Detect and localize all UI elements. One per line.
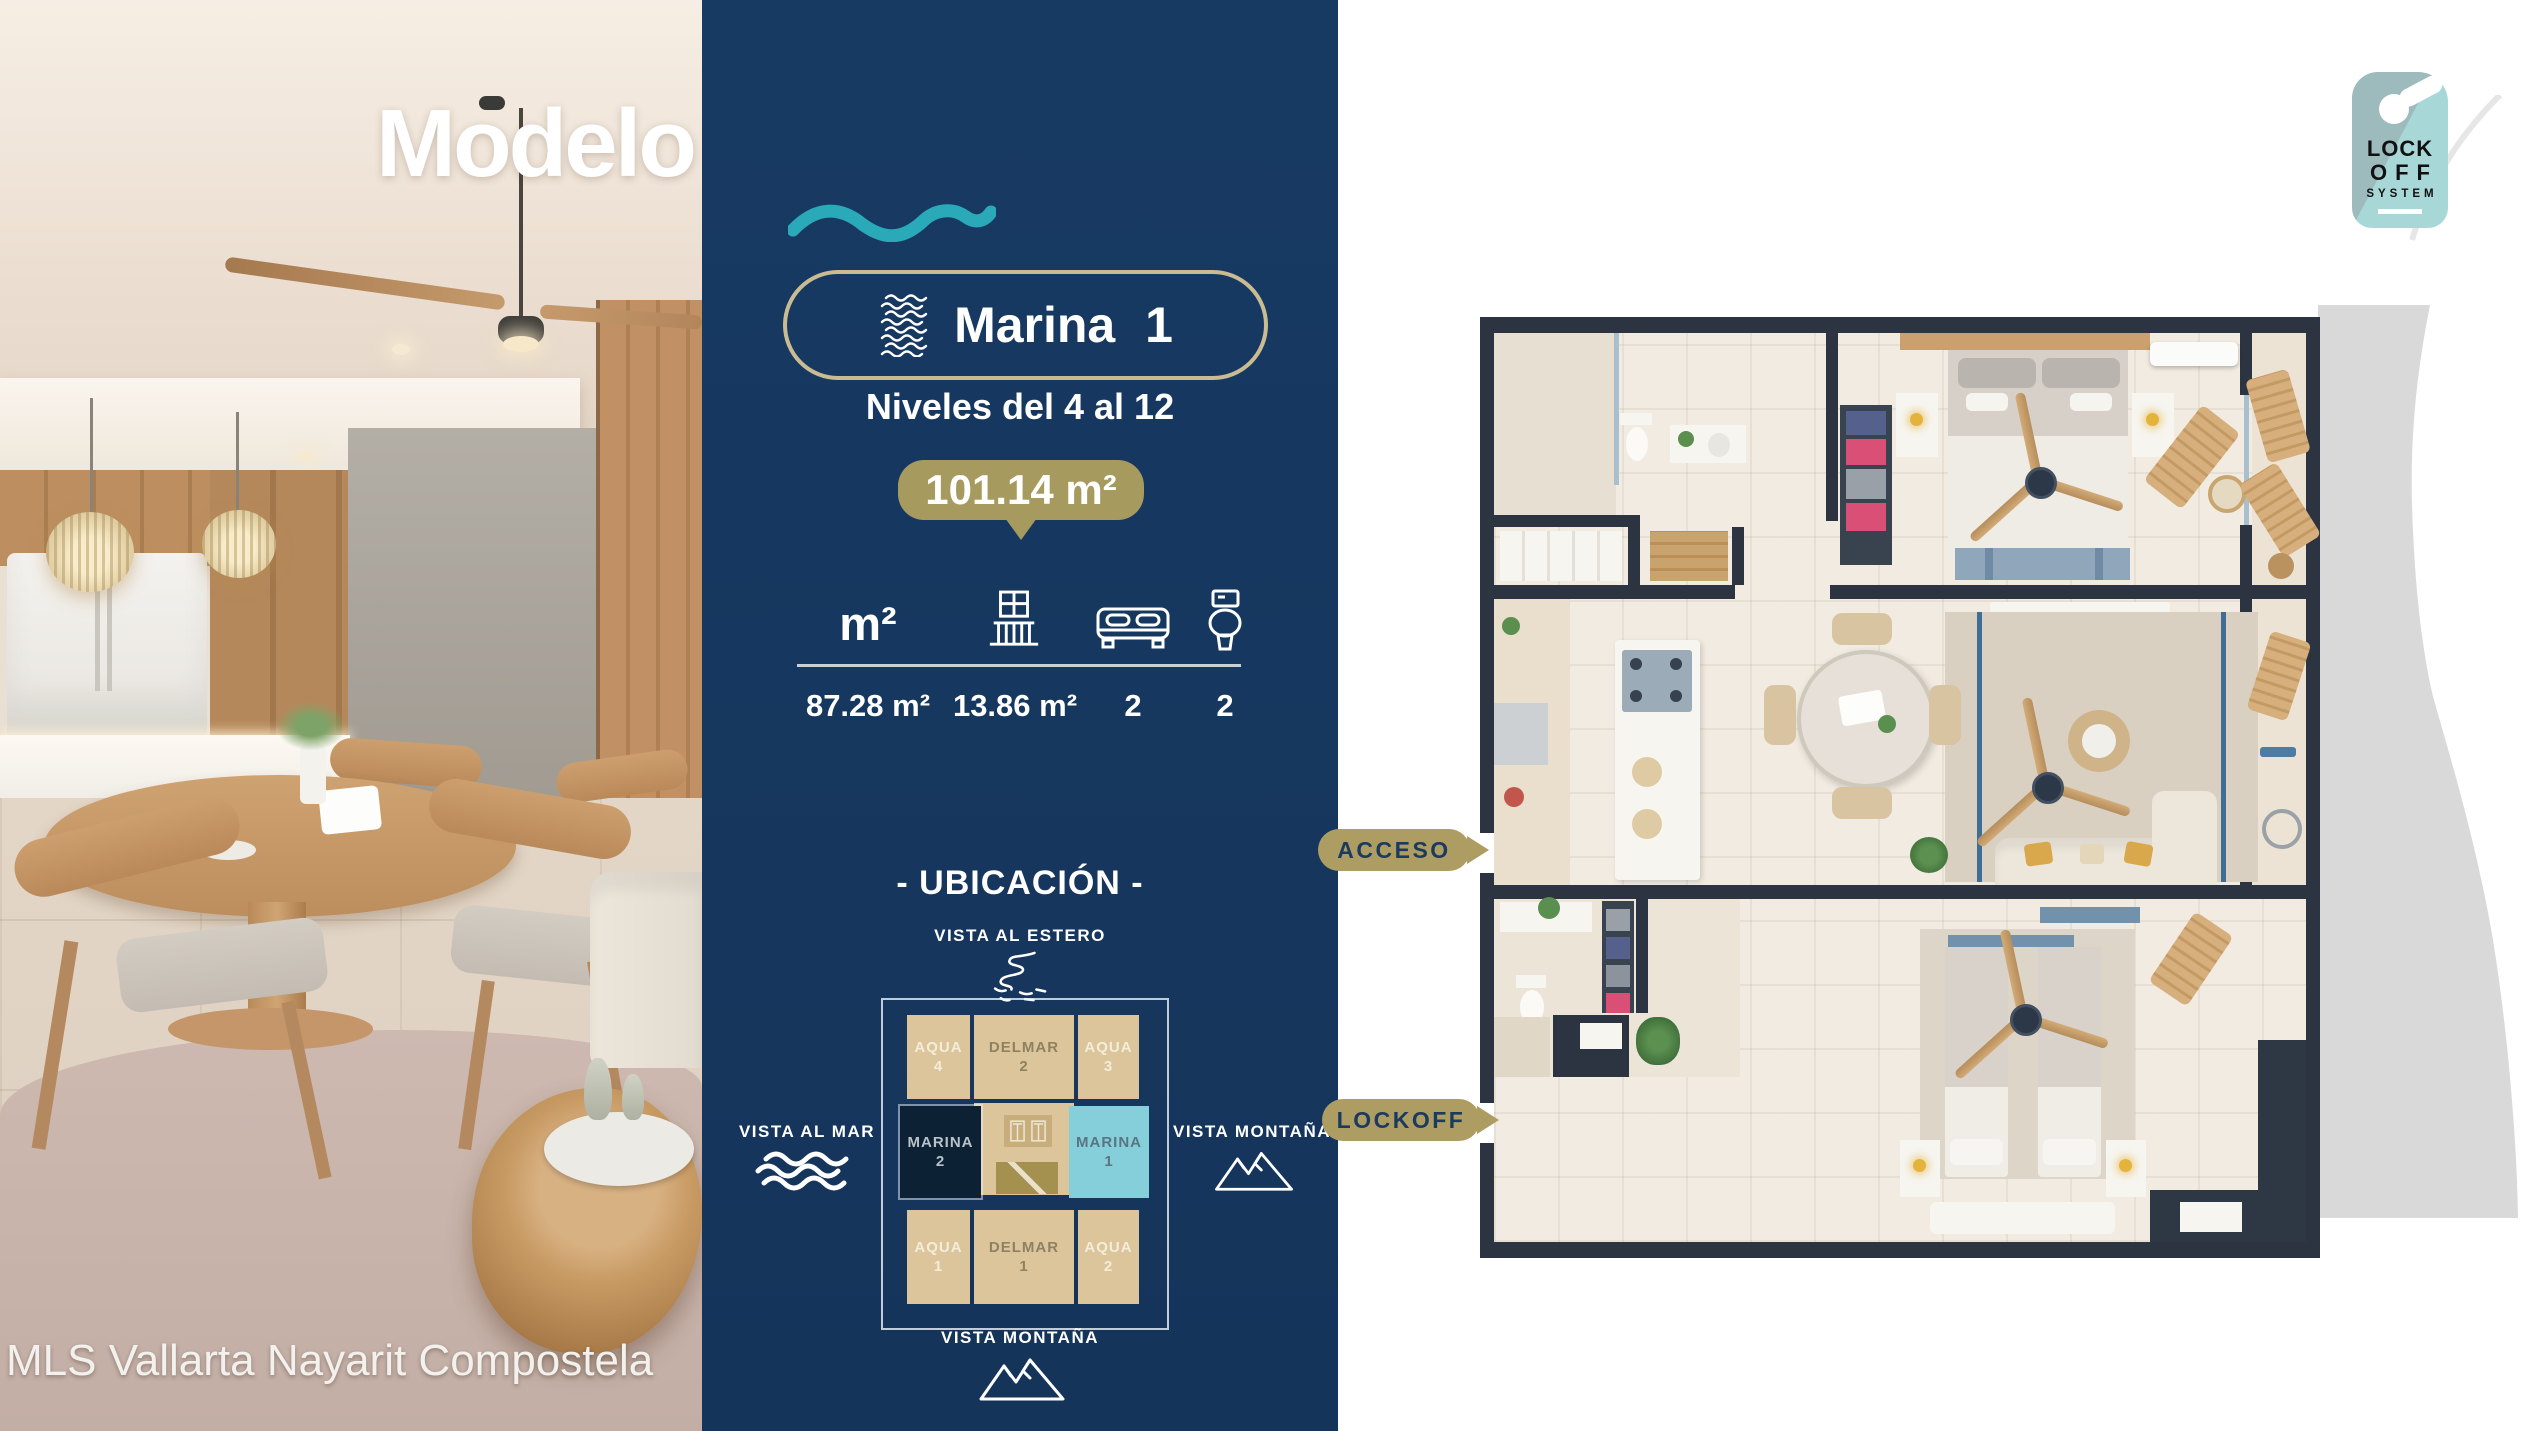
- acceso-label: ACCESO: [1337, 837, 1450, 864]
- plan-glass-door: [2244, 395, 2249, 525]
- plan-fruit-bowl: [1504, 787, 1524, 807]
- elevator-icon: [1010, 1120, 1025, 1142]
- plan-wall-left: [1480, 1143, 1494, 1258]
- photo-downlight: [392, 344, 410, 355]
- plan-coffee-tray: [2082, 724, 2116, 758]
- plan-sofa-chaise: [2152, 791, 2217, 885]
- interior-area-value: 87.28 m²: [797, 688, 939, 724]
- plan-wardrobe-item: [1606, 909, 1630, 931]
- logo-lock: LOCK: [2352, 136, 2448, 162]
- plan-sink: [1708, 433, 1730, 457]
- photo-pendant-lamp: [202, 510, 276, 578]
- plan-lamp: [2119, 1159, 2132, 1172]
- unit-cell-marina-1: MARINA 1: [1069, 1106, 1149, 1198]
- photo-decor-vase: [584, 1058, 612, 1120]
- background-swoosh: [2290, 95, 2545, 1275]
- plan-wall-v: [1826, 331, 1838, 521]
- plan-towel: [2260, 747, 2296, 757]
- unit-badge-label: Marina 1: [954, 296, 1173, 354]
- unit-number: 1: [1104, 1154, 1113, 1169]
- photo-plant-greens: [276, 702, 346, 750]
- plan-kitchen-plant: [1502, 617, 1520, 635]
- mountain-icon: [978, 1354, 1066, 1402]
- plan-wall-right: [2306, 317, 2320, 1258]
- plan-bench: [1930, 1202, 2115, 1234]
- photo-fan-light: [503, 336, 539, 352]
- brochure-page: Modelo Marina Marina 1 Niveles d: [0, 0, 2545, 1431]
- fan-hub: [2010, 1004, 2042, 1036]
- plan-kitchen-fridge: [1494, 703, 1548, 765]
- view-montana-bottom-label: VISTA MONTAÑA: [702, 1328, 1338, 1348]
- plan-balcony-table: [2268, 553, 2294, 579]
- plan-lockoff-shower: [1494, 1017, 1550, 1077]
- plan-table-plant: [1878, 715, 1896, 733]
- plan-wardrobe-item: [1846, 439, 1886, 465]
- plan-closet-shelves: [1650, 531, 1728, 581]
- unit-name: MARINA: [908, 1135, 974, 1150]
- unit-cell-aqua-1: AQUA 1: [907, 1210, 970, 1304]
- unit-name: AQUA: [1084, 1040, 1132, 1055]
- title-wave-icon: [788, 198, 996, 242]
- levels-label: Niveles del 4 al 12: [702, 386, 1338, 428]
- plan-dining-chair: [1764, 685, 1796, 745]
- plan-plant: [1538, 897, 1560, 919]
- balcony-icon: [986, 588, 1042, 654]
- plan-wardrobe-item: [1846, 469, 1886, 499]
- bathrooms-value: 2: [1190, 688, 1260, 724]
- plan-dining-chair: [1832, 613, 1892, 645]
- plan-lamp: [1913, 1159, 1926, 1172]
- unit-name: AQUA: [914, 1040, 962, 1055]
- plan-wall-closet: [1628, 527, 1640, 585]
- bedrooms-value: 2: [1098, 688, 1168, 724]
- plan-lockoff-plant: [1636, 1017, 1680, 1065]
- lockoff-label: LOCKOFF: [1337, 1107, 1466, 1134]
- plan-wall-bath: [1494, 515, 1640, 527]
- logo-system: SYSTEM: [2352, 188, 2448, 200]
- plan-rug-stripe: [2040, 907, 2140, 923]
- plan-dining-chair: [1832, 787, 1892, 819]
- photo-sofa: [590, 872, 702, 1068]
- unit-cell-aqua-3: AQUA 3: [1078, 1015, 1139, 1099]
- plan-ac-unit: [2150, 342, 2238, 366]
- terrace-area-value: 13.86 m²: [950, 688, 1080, 724]
- unit-name: DELMAR: [989, 1240, 1059, 1255]
- photo-table-base: [168, 1008, 373, 1050]
- plan-floor-plant: [1910, 837, 1948, 873]
- interior-photo: [0, 0, 702, 1431]
- plan-wardrobe-item: [1606, 993, 1630, 1013]
- view-mar-label: VISTA AL MAR: [732, 1122, 882, 1142]
- photo-downlight: [300, 452, 315, 461]
- plan-wall-left: [1480, 317, 1494, 833]
- unit-number: 2: [1019, 1059, 1028, 1074]
- plan-pillow: [2042, 358, 2120, 388]
- acceso-callout: ACCESO: [1318, 829, 1470, 871]
- plan-shower: [1494, 333, 1616, 515]
- unit-number: 1: [934, 1259, 943, 1274]
- lockoff-system-logo: LOCK OFF SYSTEM: [2352, 72, 2448, 228]
- plan-pillow: [1958, 358, 2036, 388]
- plan-sofa-pillow: [2123, 841, 2153, 867]
- plan-tray: [1632, 809, 1662, 839]
- unit-cell-aqua-4: AQUA 4: [907, 1015, 970, 1099]
- photo-pendant-cord: [236, 412, 239, 516]
- plan-wardrobe-item: [1846, 411, 1886, 435]
- photo-pendant-lamp: [46, 512, 134, 592]
- plan-lamp: [1910, 413, 1923, 426]
- bed-icon: [1094, 602, 1172, 652]
- watermark: MLS Vallarta Nayarit Compostela: [6, 1336, 653, 1386]
- unit-cell-marina-2: MARINA 2: [900, 1106, 981, 1198]
- plan-plant: [1678, 431, 1694, 447]
- unit-number: 1: [1019, 1259, 1028, 1274]
- unit-number: 4: [934, 1059, 943, 1074]
- logo-hanger-hole: [2379, 94, 2409, 124]
- page-title-modelo: Modelo: [0, 94, 694, 194]
- logo-underline: [2378, 209, 2422, 214]
- plan-burners: [1630, 658, 1642, 670]
- info-panel: Marina 1 Niveles del 4 al 12 101.14 m² m…: [702, 0, 1338, 1431]
- plan-wall-bottom: [1480, 1242, 2320, 1258]
- plan-toilet-tank: [1620, 413, 1652, 425]
- plan-wall-closet: [1732, 527, 1744, 585]
- plan-sofa-pillow: [2080, 844, 2104, 864]
- photo-pendant-cord: [90, 398, 93, 520]
- plan-tray: [1632, 757, 1662, 787]
- plan-sofa-pillow: [2024, 841, 2054, 867]
- plan-wardrobe-item: [1606, 965, 1630, 987]
- logo-off: OFF: [2352, 160, 2448, 186]
- unit-cell-aqua-2: AQUA 2: [1078, 1210, 1139, 1304]
- plan-lockoff-sink: [1580, 1023, 1622, 1049]
- elevators-block: [1004, 1115, 1052, 1147]
- plan-kitchenette-sink: [2180, 1202, 2242, 1232]
- plan-closet: [1500, 531, 1622, 581]
- plan-pillow: [1950, 1139, 2003, 1165]
- unit-name: AQUA: [1084, 1240, 1132, 1255]
- plan-wall-h: [1830, 585, 2306, 599]
- plan-wardrobe-item: [1606, 937, 1630, 959]
- plan-bed-rug: [1955, 548, 2130, 580]
- plan-pillow: [1966, 393, 2008, 411]
- unit-name: DELMAR: [989, 1040, 1059, 1055]
- photo-laptop: [318, 785, 382, 835]
- lockoff-callout: LOCKOFF: [1322, 1099, 1480, 1141]
- plan-bed-blanket: [2038, 947, 2101, 1087]
- photo-vase: [300, 742, 326, 804]
- photo-decor-vase: [622, 1074, 644, 1120]
- location-grid: AQUA 4 DELMAR 2 AQUA 3 MARINA 2 MARINA 1: [881, 998, 1169, 1330]
- plan-wall-left: [1480, 873, 1494, 1103]
- elevator-icon: [1031, 1120, 1046, 1142]
- sea-waves-icon: [754, 1148, 854, 1192]
- floor-plan: [1480, 317, 2320, 1258]
- plan-wall-h: [1494, 585, 1735, 599]
- plan-wall-h: [1494, 885, 2306, 899]
- plan-wall-balcony: [2240, 525, 2252, 585]
- plan-pillow: [2070, 393, 2112, 411]
- unit-number: 2: [936, 1154, 945, 1169]
- plan-wall-top: [1480, 317, 2320, 333]
- estero-icon: [990, 950, 1054, 1002]
- unit-name: AQUA: [914, 1240, 962, 1255]
- plan-wardrobe-item: [1846, 503, 1886, 531]
- view-estero-label: VISTA AL ESTERO: [702, 926, 1338, 946]
- stairs-block: [996, 1162, 1058, 1194]
- plan-side-table: [2208, 475, 2246, 513]
- unit-cell-delmar-2: DELMAR 2: [974, 1015, 1074, 1099]
- marina-waves-icon: [878, 293, 930, 357]
- plan-toilet-tank: [1516, 975, 1546, 988]
- plan-bed-blanket: [1945, 947, 2008, 1087]
- mountain-icon: [1212, 1148, 1296, 1192]
- plan-lamp: [2146, 413, 2159, 426]
- unit-number: 3: [1104, 1059, 1113, 1074]
- view-montana-right-label: VISTA MONTAÑA: [1168, 1122, 1336, 1142]
- unit-badge: Marina 1: [783, 270, 1268, 380]
- unit-cell-delmar-1: DELMAR 1: [974, 1210, 1074, 1304]
- photo-tray: [544, 1112, 694, 1186]
- plan-pillow: [2043, 1139, 2096, 1165]
- toilet-icon: [1204, 588, 1246, 656]
- specs-divider: [797, 664, 1241, 667]
- total-area-badge: 101.14 m²: [898, 460, 1144, 520]
- fan-hub: [2032, 772, 2064, 804]
- m2-header: m²: [812, 596, 924, 651]
- fan-hub: [2025, 467, 2057, 499]
- plan-shower-glass: [1614, 333, 1619, 485]
- plan-toilet: [1626, 427, 1648, 461]
- ubicacion-title: - UBICACIÓN -: [702, 864, 1338, 903]
- plan-bike-wheel: [2262, 809, 2302, 849]
- unit-number: 2: [1104, 1259, 1113, 1274]
- plan-dining-chair: [1929, 685, 1961, 745]
- plan-wall-v: [1636, 899, 1648, 1013]
- unit-name: MARINA: [1076, 1135, 1142, 1150]
- plan-headboard: [1900, 333, 2150, 350]
